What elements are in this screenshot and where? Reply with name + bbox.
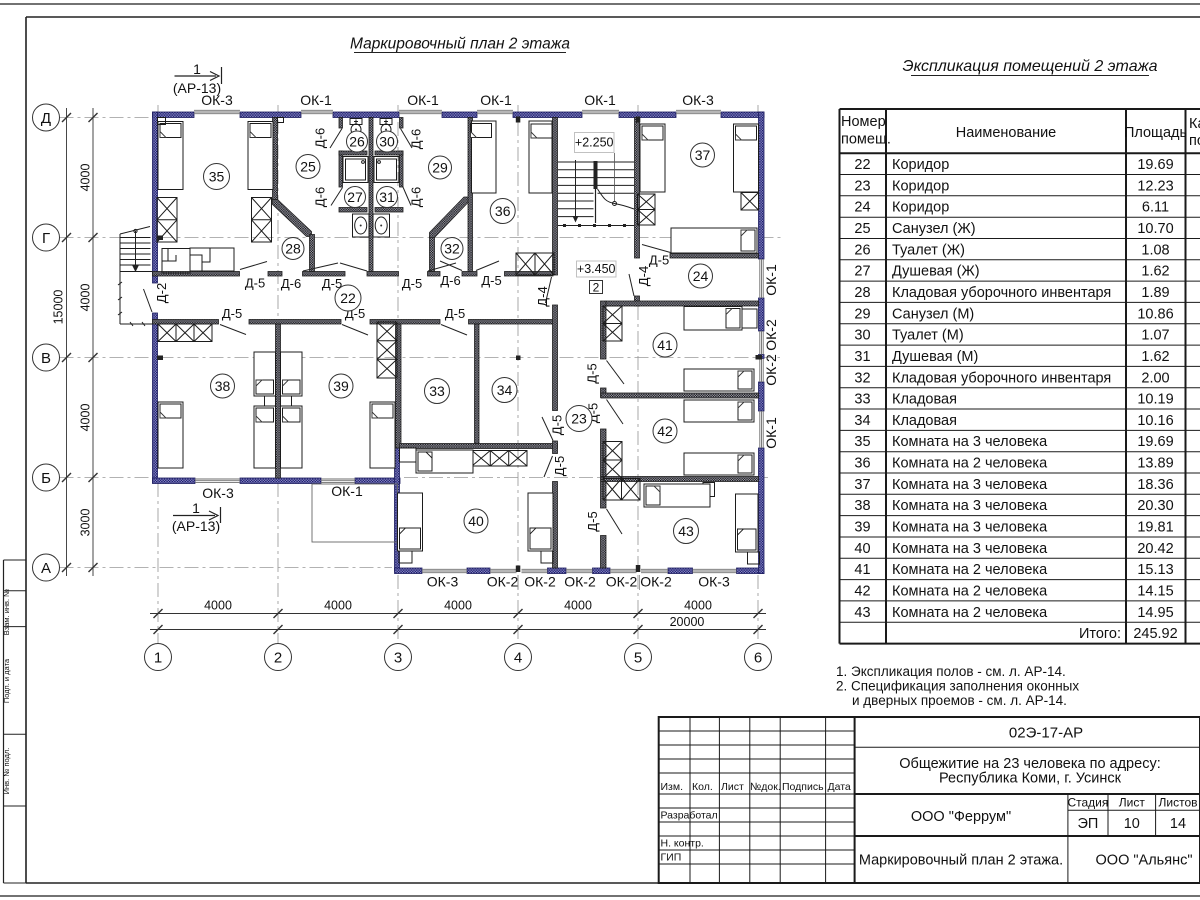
- svg-text:12.23: 12.23: [1137, 178, 1173, 194]
- svg-text:2.00: 2.00: [1141, 370, 1169, 386]
- svg-text:4000: 4000: [79, 404, 93, 432]
- svg-text:2. Спецификация заполнения око: 2. Спецификация заполнения оконных: [836, 679, 1079, 694]
- svg-text:Д-6: Д-6: [440, 273, 460, 288]
- svg-text:Коридор: Коридор: [892, 200, 949, 216]
- svg-text:ОК-2: ОК-2: [487, 574, 519, 590]
- svg-text:23: 23: [571, 411, 587, 427]
- svg-text:37: 37: [695, 147, 711, 163]
- svg-text:Комната на 3 человека: Комната на 3 человека: [892, 541, 1048, 557]
- svg-text:Д-4: Д-4: [535, 286, 550, 306]
- svg-text:ОК-3: ОК-3: [427, 574, 459, 590]
- svg-text:Д-4: Д-4: [636, 266, 651, 286]
- svg-text:10.86: 10.86: [1137, 306, 1173, 322]
- svg-text:ОК-2: ОК-2: [763, 319, 779, 351]
- svg-text:Итого:: Итого:: [1079, 626, 1121, 642]
- svg-text:Д-5: Д-5: [402, 276, 422, 291]
- svg-text:Кладовая уборочного инвентаря: Кладовая уборочного инвентаря: [892, 370, 1111, 386]
- svg-text:Экспликация помещений 2 этажа: Экспликация помещений 2 этажа: [903, 58, 1158, 75]
- svg-text:Инв. № подл.: Инв. № подл.: [2, 748, 11, 795]
- svg-text:14: 14: [1170, 816, 1186, 832]
- svg-text:22: 22: [854, 157, 870, 173]
- svg-text:+2.250: +2.250: [575, 136, 614, 150]
- svg-text:1: 1: [192, 500, 200, 516]
- svg-text:ОК-3: ОК-3: [682, 92, 714, 108]
- svg-text:14.95: 14.95: [1137, 605, 1173, 621]
- svg-text:(АР-13): (АР-13): [172, 518, 220, 534]
- svg-text:19.81: 19.81: [1137, 520, 1173, 536]
- svg-text:19.69: 19.69: [1137, 434, 1173, 450]
- svg-text:ОК-2: ОК-2: [524, 574, 556, 590]
- svg-text:ОК-1: ОК-1: [763, 417, 779, 449]
- svg-text:40: 40: [468, 513, 484, 529]
- svg-text:4000: 4000: [564, 599, 592, 613]
- svg-text:43: 43: [678, 523, 694, 539]
- svg-text:4000: 4000: [79, 164, 93, 192]
- svg-text:38: 38: [854, 498, 870, 514]
- svg-text:31: 31: [854, 349, 870, 365]
- svg-text:10: 10: [1124, 816, 1140, 832]
- svg-text:35: 35: [854, 434, 870, 450]
- svg-text:42: 42: [657, 423, 673, 439]
- svg-text:Подпись: Подпись: [782, 781, 824, 793]
- svg-text:по: по: [1189, 133, 1200, 149]
- svg-text:Н. контр.: Н. контр.: [661, 838, 704, 850]
- svg-text:ОК-1: ОК-1: [480, 92, 512, 108]
- svg-text:Д-5: Д-5: [585, 511, 600, 531]
- svg-text:Кол.: Кол.: [692, 781, 713, 793]
- svg-text:26: 26: [349, 134, 365, 150]
- svg-text:Д-6: Д-6: [313, 187, 328, 207]
- svg-text:Коридор: Коридор: [892, 178, 949, 194]
- svg-text:245.92: 245.92: [1133, 626, 1177, 642]
- svg-text:2: 2: [274, 650, 282, 667]
- svg-text:ОК-2: ОК-2: [640, 574, 672, 590]
- svg-text:39: 39: [333, 378, 349, 394]
- svg-text:Дата: Дата: [828, 781, 851, 793]
- svg-text:ОК-1: ОК-1: [300, 92, 332, 108]
- svg-text:Санузел (Ж): Санузел (Ж): [892, 221, 976, 237]
- svg-text:ООО "Альянс": ООО "Альянс": [1096, 853, 1193, 869]
- svg-text:Лист: Лист: [1119, 796, 1146, 810]
- svg-text:24: 24: [693, 268, 709, 284]
- svg-text:29: 29: [854, 306, 870, 322]
- svg-text:ОК-3: ОК-3: [202, 485, 234, 501]
- svg-text:Д: Д: [41, 110, 51, 127]
- svg-text:Д-6: Д-6: [313, 128, 328, 148]
- svg-text:Разработал: Разработал: [661, 810, 718, 822]
- svg-text:14.15: 14.15: [1137, 584, 1173, 600]
- svg-text:Г: Г: [42, 230, 50, 247]
- svg-text:6: 6: [754, 650, 762, 667]
- svg-text:27: 27: [854, 264, 870, 280]
- svg-text:Д-5: Д-5: [585, 363, 600, 383]
- svg-text:Взам. инв. №: Взам. инв. №: [2, 589, 11, 635]
- svg-text:Наименование: Наименование: [956, 125, 1057, 141]
- svg-text:Д-5: Д-5: [222, 306, 242, 321]
- svg-text:10.19: 10.19: [1137, 392, 1173, 408]
- svg-text:28: 28: [854, 285, 870, 301]
- svg-text:Листов: Листов: [1159, 796, 1198, 810]
- svg-text:4000: 4000: [684, 599, 712, 613]
- svg-text:30: 30: [379, 134, 395, 150]
- svg-text:ГИП: ГИП: [661, 852, 682, 864]
- svg-text:41: 41: [854, 562, 870, 578]
- svg-text:29: 29: [432, 160, 448, 176]
- svg-text:22: 22: [340, 290, 356, 306]
- svg-text:10.70: 10.70: [1137, 221, 1173, 237]
- svg-text:Кладовая уборочного инвентаря: Кладовая уборочного инвентаря: [892, 285, 1111, 301]
- svg-text:Изм.: Изм.: [661, 781, 684, 793]
- svg-text:42: 42: [854, 584, 870, 600]
- svg-text:Кладовая: Кладовая: [892, 413, 957, 429]
- svg-text:6.11: 6.11: [1142, 200, 1169, 216]
- svg-text:Д-5: Д-5: [550, 415, 565, 435]
- svg-text:1: 1: [154, 650, 162, 667]
- svg-text:20000: 20000: [670, 615, 705, 629]
- svg-text:№док.: №док.: [750, 781, 781, 793]
- svg-text:15000: 15000: [52, 290, 66, 325]
- svg-text:В: В: [41, 350, 51, 367]
- svg-text:28: 28: [285, 241, 301, 257]
- svg-text:25: 25: [300, 159, 316, 175]
- svg-text:ОК-2: ОК-2: [763, 354, 779, 386]
- svg-text:38: 38: [215, 378, 231, 394]
- svg-text:Б: Б: [41, 470, 51, 487]
- svg-text:1.62: 1.62: [1141, 349, 1169, 365]
- svg-text:ОК-1: ОК-1: [763, 264, 779, 296]
- svg-text:1.89: 1.89: [1141, 285, 1169, 301]
- svg-text:+3.450: +3.450: [577, 262, 616, 276]
- svg-text:Площадь: Площадь: [1124, 125, 1187, 141]
- svg-text:36: 36: [495, 203, 511, 219]
- svg-text:1. Экспликация полов - см. л.: 1. Экспликация полов - см. л. АР-14.: [836, 664, 1066, 679]
- svg-text:26: 26: [854, 242, 870, 258]
- svg-text:Комната на 2 человека: Комната на 2 человека: [892, 562, 1048, 578]
- svg-text:34: 34: [854, 413, 870, 429]
- svg-text:Д-2: Д-2: [154, 283, 169, 303]
- svg-text:15.13: 15.13: [1137, 562, 1173, 578]
- svg-text:2: 2: [593, 281, 600, 295]
- svg-text:ООО "Феррум": ООО "Феррум": [911, 809, 1011, 825]
- svg-text:ОК-3: ОК-3: [698, 574, 730, 590]
- svg-text:ЭП: ЭП: [1077, 816, 1098, 832]
- svg-text:1.07: 1.07: [1141, 328, 1169, 344]
- svg-text:18.36: 18.36: [1137, 477, 1173, 493]
- svg-text:02Э-17-АР: 02Э-17-АР: [1009, 725, 1083, 742]
- svg-text:Коридор: Коридор: [892, 157, 949, 173]
- svg-text:и дверных проемов - см. л. АР-: и дверных проемов - см. л. АР-14.: [852, 693, 1067, 708]
- svg-text:Д-5: Д-5: [649, 253, 669, 268]
- svg-text:ОК-1: ОК-1: [584, 92, 616, 108]
- svg-text:3: 3: [394, 650, 402, 667]
- svg-text:Комната на 3 человека: Комната на 3 человека: [892, 520, 1048, 536]
- svg-text:Душевая (Ж): Душевая (Ж): [892, 264, 980, 280]
- svg-text:Маркировочный план 2 этажа.: Маркировочный план 2 этажа.: [859, 853, 1063, 869]
- svg-text:25: 25: [854, 221, 870, 237]
- svg-text:Санузел (М): Санузел (М): [892, 306, 974, 322]
- svg-text:34: 34: [497, 382, 513, 398]
- svg-text:20.30: 20.30: [1137, 498, 1173, 514]
- svg-text:36: 36: [854, 456, 870, 472]
- svg-text:3000: 3000: [79, 509, 93, 537]
- svg-text:Комната на 3 человека: Комната на 3 человека: [892, 477, 1048, 493]
- svg-text:37: 37: [854, 477, 870, 493]
- svg-text:4000: 4000: [324, 599, 352, 613]
- svg-text:Республика Коми, г. Усинск: Республика Коми, г. Усинск: [939, 771, 1122, 787]
- svg-text:31: 31: [379, 189, 395, 205]
- svg-text:ОК-1: ОК-1: [331, 483, 363, 499]
- svg-text:10.16: 10.16: [1137, 413, 1173, 429]
- svg-text:40: 40: [854, 541, 870, 557]
- svg-text:ОК-1: ОК-1: [407, 92, 439, 108]
- svg-text:13.89: 13.89: [1137, 456, 1173, 472]
- svg-text:Д-6: Д-6: [409, 129, 424, 149]
- svg-text:Д-5: Д-5: [552, 456, 567, 476]
- svg-text:32: 32: [854, 370, 870, 386]
- svg-text:23: 23: [854, 178, 870, 194]
- svg-text:1.62: 1.62: [1141, 264, 1169, 280]
- svg-text:33: 33: [429, 383, 445, 399]
- svg-text:32: 32: [444, 241, 460, 257]
- svg-text:1.08: 1.08: [1141, 242, 1169, 258]
- svg-text:Комната на 2 человека: Комната на 2 человека: [892, 456, 1048, 472]
- svg-text:Д-6: Д-6: [281, 276, 301, 291]
- svg-text:5: 5: [634, 650, 642, 667]
- svg-text:24: 24: [854, 200, 870, 216]
- svg-text:4: 4: [514, 650, 522, 667]
- svg-text:А: А: [41, 560, 51, 577]
- svg-text:Комната на 3 человека: Комната на 3 человека: [892, 434, 1048, 450]
- svg-text:Ка: Ка: [1189, 116, 1200, 132]
- svg-text:Стадия: Стадия: [1067, 796, 1108, 810]
- svg-text:1: 1: [193, 61, 201, 77]
- svg-text:Д-5: Д-5: [481, 273, 501, 288]
- svg-text:Комната на 2 человека: Комната на 2 человека: [892, 584, 1048, 600]
- svg-text:Маркировочный план 2 этажа: Маркировочный план 2 этажа: [350, 36, 570, 53]
- svg-text:Д-5: Д-5: [245, 276, 265, 291]
- svg-text:41: 41: [657, 337, 673, 353]
- svg-text:ОК-2: ОК-2: [606, 574, 638, 590]
- svg-text:Душевая (М): Душевая (М): [892, 349, 978, 365]
- svg-text:Номер: Номер: [841, 114, 886, 130]
- svg-text:35: 35: [209, 169, 225, 185]
- svg-text:30: 30: [854, 328, 870, 344]
- svg-text:Кладовая: Кладовая: [892, 392, 957, 408]
- svg-text:4000: 4000: [204, 599, 232, 613]
- svg-text:27: 27: [347, 189, 363, 205]
- svg-text:33: 33: [854, 392, 870, 408]
- svg-text:помещ.: помещ.: [841, 132, 891, 148]
- svg-text:Туалет (М): Туалет (М): [892, 328, 964, 344]
- svg-text:ОК-3: ОК-3: [201, 92, 233, 108]
- svg-text:20.42: 20.42: [1137, 541, 1173, 557]
- svg-text:Д-6: Д-6: [409, 187, 424, 207]
- svg-text:4000: 4000: [79, 284, 93, 312]
- svg-text:43: 43: [854, 605, 870, 621]
- svg-text:Лист: Лист: [721, 781, 744, 793]
- svg-text:Подп. и дата: Подп. и дата: [2, 658, 11, 703]
- svg-text:ОК-2: ОК-2: [564, 574, 596, 590]
- svg-text:39: 39: [854, 520, 870, 536]
- svg-text:19.69: 19.69: [1137, 157, 1173, 173]
- svg-text:Комната на 2 человека: Комната на 2 человека: [892, 605, 1048, 621]
- svg-text:Комната на 3 человека: Комната на 3 человека: [892, 498, 1048, 514]
- svg-text:Д-5: Д-5: [445, 306, 465, 321]
- svg-text:Туалет (Ж): Туалет (Ж): [892, 242, 965, 258]
- svg-text:4000: 4000: [444, 599, 472, 613]
